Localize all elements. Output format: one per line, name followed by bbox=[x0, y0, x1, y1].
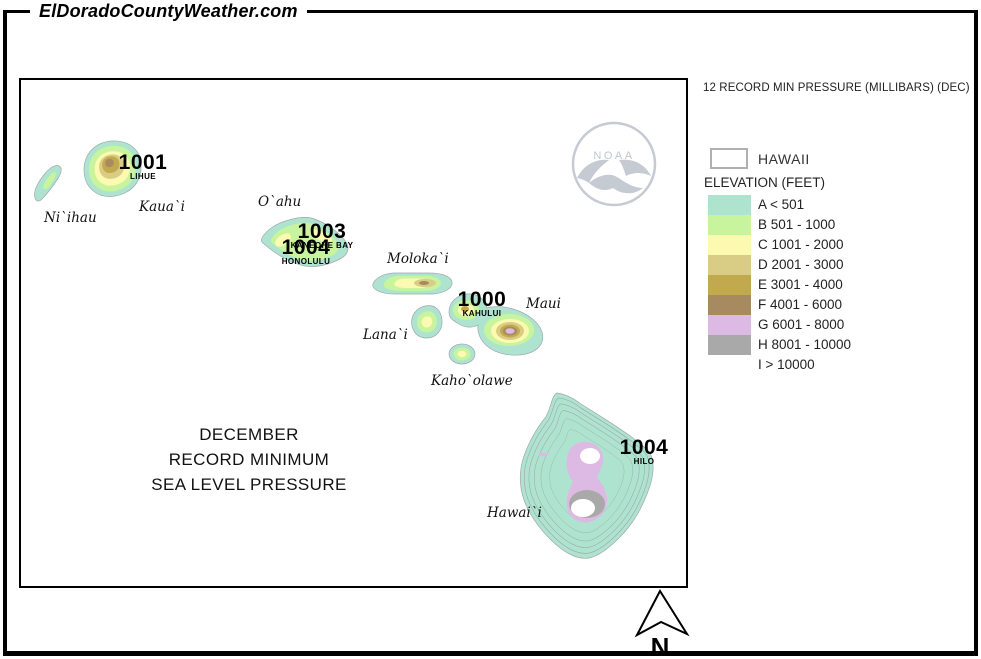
legend-label: F 4001 - 6000 bbox=[758, 295, 842, 315]
page-border-bottom bbox=[3, 651, 978, 656]
legend-label: C 1001 - 2000 bbox=[758, 235, 844, 255]
map-title-line-1: DECEMBER bbox=[109, 422, 389, 447]
legend-label: B 501 - 1000 bbox=[758, 215, 835, 235]
map-title: DECEMBER RECORD MINIMUM SEA LEVEL PRESSU… bbox=[109, 422, 389, 497]
island-niihau bbox=[34, 165, 61, 201]
legend-swatch bbox=[708, 355, 751, 375]
island-kahoolawe bbox=[449, 344, 475, 364]
island-label-kahoolawe: Kaho`olawe bbox=[431, 373, 513, 389]
legend-label: A < 501 bbox=[758, 195, 804, 215]
site-title: ElDoradoCountyWeather.com bbox=[30, 1, 307, 22]
map-frame: NOAA Ni`ihau Kaua`i O`ahu Moloka`i Lana`… bbox=[19, 78, 688, 588]
station-lihue: 1001 LIHUE bbox=[73, 153, 213, 181]
map-title-line-3: SEA LEVEL PRESSURE bbox=[109, 472, 389, 497]
elevation-legend-heading: ELEVATION (FEET) bbox=[704, 175, 825, 190]
legend-swatch bbox=[708, 235, 751, 255]
island-label-oahu: O`ahu bbox=[258, 194, 301, 210]
weather-map-page: ElDoradoCountyWeather.com bbox=[0, 0, 981, 659]
legend-label: E 3001 - 4000 bbox=[758, 275, 843, 295]
legend-swatch bbox=[708, 295, 751, 315]
north-arrow: N bbox=[620, 585, 710, 659]
noaa-logo: NOAA bbox=[573, 123, 655, 205]
legend-row: E 3001 - 4000 bbox=[708, 275, 851, 295]
legend-row: G 6001 - 8000 bbox=[708, 315, 851, 335]
page-border-right bbox=[974, 10, 978, 656]
station-name: LIHUE bbox=[73, 172, 213, 181]
island-hawaii bbox=[520, 393, 653, 558]
legend-row: H 8001 - 10000 bbox=[708, 335, 851, 355]
pressure-value: 1004 bbox=[574, 438, 714, 457]
island-label-niihau: Ni`ihau bbox=[44, 210, 97, 226]
legend-title: 12 RECORD MIN PRESSURE (MILLIBARS) (DEC) bbox=[703, 82, 970, 94]
pressure-value: 1004 bbox=[236, 238, 376, 257]
legend-swatch bbox=[708, 315, 751, 335]
legend-row: A < 501 bbox=[708, 195, 851, 215]
noaa-logo-text: NOAA bbox=[593, 150, 634, 162]
legend-swatch bbox=[708, 275, 751, 295]
station-honolulu: 1004 HONOLULU bbox=[236, 238, 376, 266]
legend-label: I > 10000 bbox=[758, 355, 815, 375]
legend-row: D 2001 - 3000 bbox=[708, 255, 851, 275]
pressure-value: 1000 bbox=[412, 290, 552, 309]
pressure-value: 1001 bbox=[73, 153, 213, 172]
elevation-legend: A < 501 B 501 - 1000 C 1001 - 2000 D 200… bbox=[708, 195, 851, 375]
legend-label: H 8001 - 10000 bbox=[758, 335, 851, 355]
legend-swatch bbox=[708, 255, 751, 275]
legend-swatch bbox=[708, 195, 751, 215]
north-label: N bbox=[651, 632, 670, 659]
noaa-circle bbox=[573, 123, 655, 205]
island-label-lanai: Lana`i bbox=[363, 327, 408, 343]
station-name: KAHULUI bbox=[412, 309, 552, 318]
station-kahului: 1000 KAHULUI bbox=[412, 290, 552, 318]
hawaii-label: HAWAII bbox=[758, 151, 810, 167]
station-name: HONOLULU bbox=[236, 257, 376, 266]
legend-swatch bbox=[708, 215, 751, 235]
station-hilo: 1004 HILO bbox=[574, 438, 714, 466]
island-label-molokai: Moloka`i bbox=[387, 251, 449, 267]
legend-label: D 2001 - 3000 bbox=[758, 255, 844, 275]
map-title-line-2: RECORD MINIMUM bbox=[109, 447, 389, 472]
station-name: HILO bbox=[574, 457, 714, 466]
island-label-hawaii: Hawai`i bbox=[487, 505, 542, 521]
legend-row: F 4001 - 6000 bbox=[708, 295, 851, 315]
hawaii-extent-box bbox=[710, 148, 748, 169]
legend-label: G 6001 - 8000 bbox=[758, 315, 844, 335]
island-label-kauai: Kaua`i bbox=[139, 199, 185, 215]
page-border-left bbox=[3, 10, 7, 656]
legend-row: B 501 - 1000 bbox=[708, 215, 851, 235]
north-arrow-icon bbox=[637, 591, 687, 635]
legend-row: I > 10000 bbox=[708, 355, 851, 375]
legend-row: C 1001 - 2000 bbox=[708, 235, 851, 255]
legend-swatch bbox=[708, 335, 751, 355]
